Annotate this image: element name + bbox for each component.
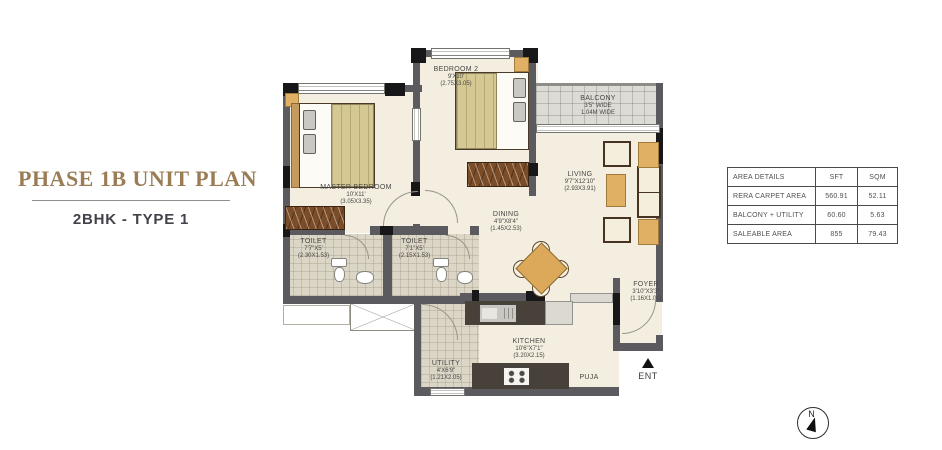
bed-blanket — [331, 104, 374, 187]
window — [430, 388, 465, 396]
table-row: BALCONY + UTILITY 60.60 5.63 — [728, 206, 898, 225]
table-row: RERA CARPET AREA 560.91 52.11 — [728, 187, 898, 206]
room-label-toilet-1: TOILET 7'7"X5' (2.30X1.53) — [286, 238, 341, 260]
kitchen-platform — [570, 293, 613, 303]
washbasin — [457, 271, 473, 284]
pillow — [513, 102, 526, 122]
wardrobe — [467, 162, 529, 187]
cell-label: SALEABLE AREA — [728, 225, 816, 244]
wall-corner — [411, 48, 426, 63]
room-label-foyer: FOYER 3'10"X3'3" (1.16X1.00) — [617, 281, 675, 303]
cell-label: BALCONY + UTILITY — [728, 206, 816, 225]
pillow — [303, 110, 316, 130]
title-divider — [32, 200, 230, 201]
stove — [503, 367, 530, 386]
header-sft: SFT — [816, 168, 858, 187]
sofa — [637, 166, 661, 218]
room-label-dining: DINING 4'9"X8'4" (1.45X2.53) — [471, 211, 541, 233]
room-label-bedroom2: BEDROOM 2 9'X10' (2.75X3.05) — [421, 66, 491, 88]
pillow — [303, 134, 316, 154]
room-label-master-bedroom: MASTER BEDROOM 10'X11' (3.05X3.35) — [291, 184, 421, 206]
wall-corner — [385, 83, 405, 96]
pillow — [513, 78, 526, 98]
area-table: AREA DETAILS SFT SQM RERA CARPET AREA 56… — [727, 167, 898, 244]
cell-sft: 560.91 — [816, 187, 858, 206]
wall-segment — [656, 83, 663, 128]
area-table-header-row: AREA DETAILS SFT SQM — [728, 168, 898, 187]
side-table — [638, 219, 659, 245]
armchair — [603, 141, 631, 167]
header-area-details: AREA DETAILS — [728, 168, 816, 187]
window — [298, 83, 385, 94]
kitchen-sink — [479, 304, 517, 323]
room-label-living: LIVING 9'7"X12'10" (2.93X3.91) — [545, 171, 615, 193]
page: PHASE 1B UNIT PLAN 2BHK - TYPE 1 AREA DE… — [0, 0, 942, 450]
unit-type-subtitle: 2BHK - TYPE 1 — [18, 211, 244, 228]
table-row: SALEABLE AREA 855 79.43 — [728, 225, 898, 244]
header-sqm: SQM — [858, 168, 898, 187]
window — [431, 48, 510, 59]
title-block: PHASE 1B UNIT PLAN 2BHK - TYPE 1 — [18, 166, 244, 228]
shaft — [350, 303, 416, 331]
nightstand — [514, 57, 529, 72]
room-label-balcony: BALCONY 3'5" WIDE 1.04M WIDE — [558, 95, 638, 117]
entry-arrow-icon — [642, 358, 654, 368]
cell-sqm: 79.43 — [858, 225, 898, 244]
armchair — [603, 217, 631, 243]
room-label-puja: PUJA — [569, 374, 609, 382]
compass-needle-icon — [806, 416, 819, 432]
wall-corner — [380, 226, 393, 235]
cell-sft: 60.60 — [816, 206, 858, 225]
wall-corner — [283, 166, 290, 188]
cell-label: RERA CARPET AREA — [728, 187, 816, 206]
compass-icon: N — [797, 407, 829, 439]
kitchen-cabinet — [545, 301, 573, 325]
toilet-bowl — [334, 267, 345, 282]
cell-sqm: 5.63 — [858, 206, 898, 225]
floor-plan: MASTER BEDROOM 10'X11' (3.05X3.35) BEDRO… — [283, 38, 675, 404]
balcony-parapet — [536, 83, 663, 86]
entry-label: ENT — [633, 371, 663, 381]
side-table — [638, 142, 659, 168]
entry-marker: ENT — [633, 358, 663, 381]
room-label-kitchen: KITCHEN 10'6"X7'1" (3.20X2.15) — [494, 338, 564, 360]
wall-opening — [412, 108, 421, 141]
room-label-toilet-2: TOILET 7'1"X5' (2.15X1.53) — [387, 238, 442, 260]
wall-segment — [613, 343, 663, 351]
washbasin — [356, 271, 374, 284]
cell-sqm: 52.11 — [858, 187, 898, 206]
wall-segment — [283, 296, 479, 304]
toilet-bowl — [436, 267, 447, 282]
ledge — [283, 305, 350, 325]
wall-segment — [283, 85, 290, 301]
page-title: PHASE 1B UNIT PLAN — [18, 166, 244, 192]
cell-sft: 855 — [816, 225, 858, 244]
balcony-sliding-door — [536, 124, 660, 133]
room-label-utility: UTILITY 4'X6'9" (1.21X2.05) — [416, 360, 476, 382]
wardrobe — [285, 206, 345, 230]
